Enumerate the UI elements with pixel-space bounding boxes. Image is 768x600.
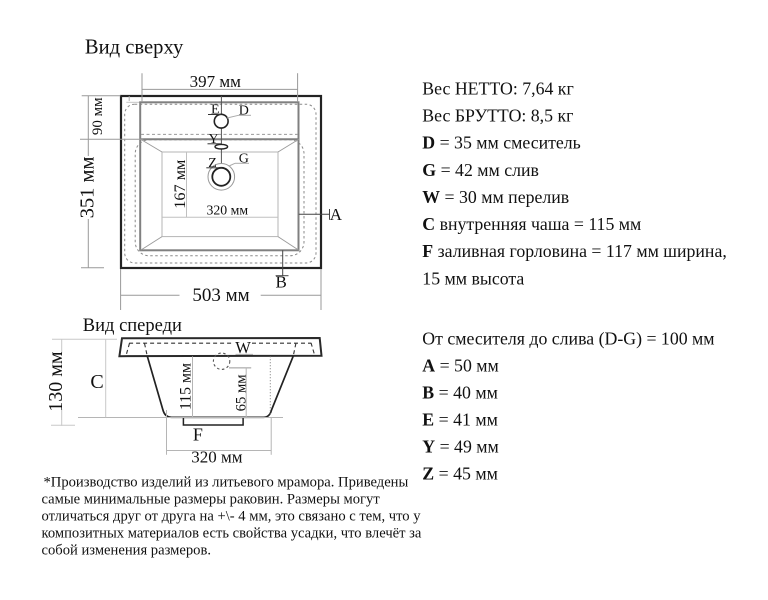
svg-text:W = 30 мм перелив: W = 30 мм перелив	[422, 187, 569, 207]
svg-text:Вес БРУТТО: 8,5 кг: Вес БРУТТО: 8,5 кг	[422, 106, 573, 126]
svg-text:351 мм: 351 мм	[77, 156, 99, 218]
svg-text:397 мм: 397 мм	[190, 72, 242, 91]
svg-text:отличаться друг от друга на +\: отличаться друг от друга на +\- 4 мм, эт…	[42, 509, 422, 525]
svg-text:503 мм: 503 мм	[192, 285, 249, 306]
svg-text:115 мм: 115 мм	[178, 363, 195, 410]
svg-text:G = 42 мм слив: G = 42 мм слив	[422, 160, 539, 180]
svg-text:самые минимальные размеры рако: самые минимальные размеры раковин. Разме…	[42, 491, 381, 507]
svg-text:E = 41 мм: E = 41 мм	[422, 409, 498, 429]
svg-text:B = 40 мм: B = 40 мм	[422, 382, 498, 402]
svg-text:Вес НЕТТО: 7,64 кг: Вес НЕТТО: 7,64 кг	[422, 78, 573, 98]
svg-text:F: F	[193, 425, 203, 445]
svg-text:320 мм: 320 мм	[191, 447, 243, 466]
svg-text:Z: Z	[208, 156, 217, 171]
svg-text:Y: Y	[209, 132, 219, 147]
svg-text:A: A	[330, 205, 343, 224]
svg-text:A = 50 мм: A = 50 мм	[422, 355, 499, 375]
svg-text:15 мм высота: 15 мм высота	[422, 268, 524, 288]
svg-text:90 мм: 90 мм	[90, 97, 106, 135]
svg-text:Z = 45 мм: Z = 45 мм	[422, 464, 498, 484]
svg-text:130 мм: 130 мм	[45, 351, 67, 412]
svg-text:*Производство изделий из литье: *Производство изделий из литьевого мрамо…	[44, 474, 409, 490]
svg-text:D: D	[239, 104, 249, 119]
svg-text:65 мм: 65 мм	[234, 374, 250, 411]
svg-text:Вид спереди: Вид спереди	[83, 316, 182, 336]
svg-text:B: B	[276, 273, 287, 292]
svg-text:167 мм: 167 мм	[170, 160, 189, 209]
svg-text:320 мм: 320 мм	[206, 203, 248, 218]
svg-text:От смесителя до слива (D-G) =: От смесителя до слива (D-G) = 100 мм	[422, 328, 714, 349]
svg-text:собой изменения размеров.: собой изменения размеров.	[42, 543, 211, 559]
svg-text:Y = 49 мм: Y = 49 мм	[422, 437, 499, 457]
svg-text:Вид сверху: Вид сверху	[85, 36, 184, 58]
svg-text:C: C	[90, 371, 103, 393]
svg-text:C внутренняя чаша = 115 мм: C внутренняя чаша = 115 мм	[422, 214, 641, 234]
svg-text:композитных материалов есть св: композитных материалов есть свойства уса…	[42, 526, 422, 542]
svg-text:F заливная горловина = 117 мм: F заливная горловина = 117 мм ширина,	[422, 241, 726, 261]
svg-text:G: G	[239, 151, 249, 166]
svg-text:D = 35 мм смеситель: D = 35 мм смеситель	[422, 133, 580, 153]
svg-text:E: E	[211, 103, 220, 118]
